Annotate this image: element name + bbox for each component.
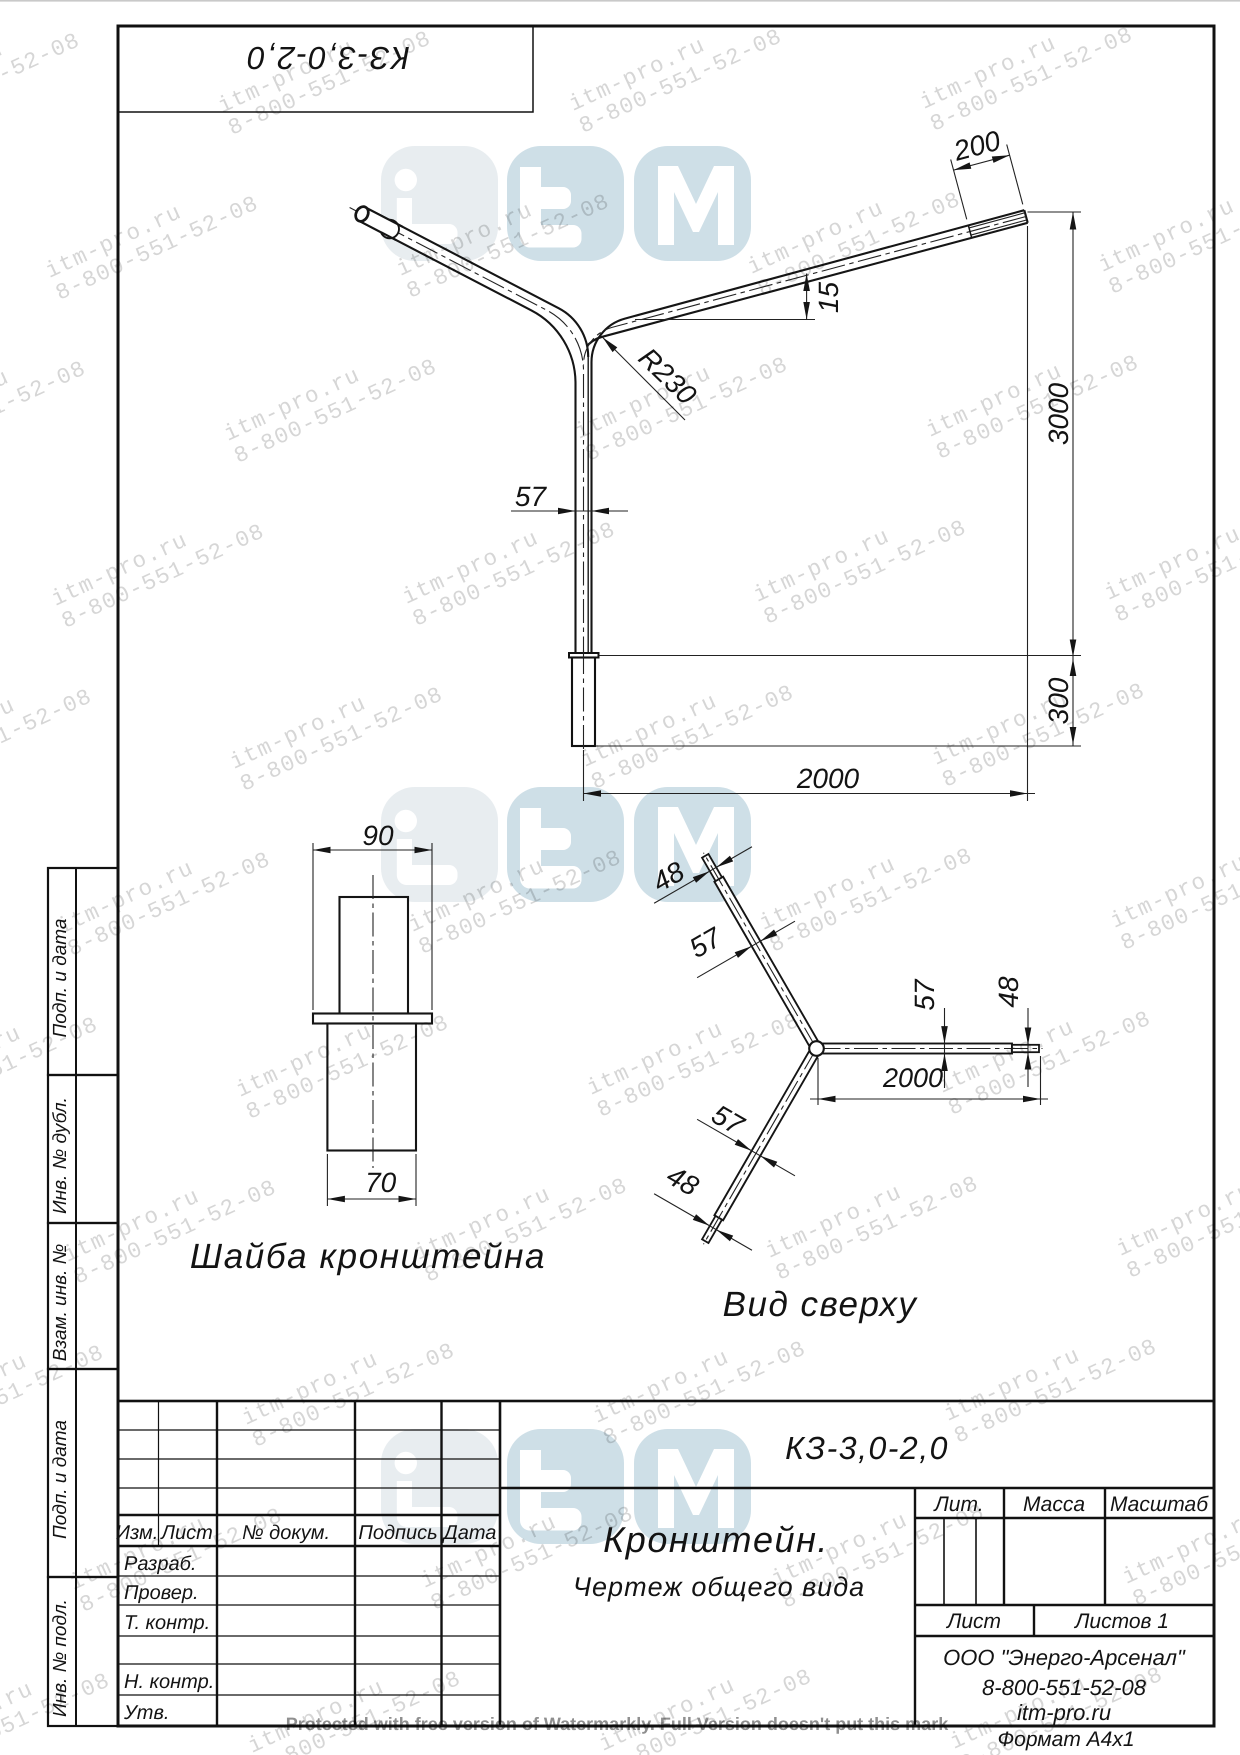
svg-text:Protected with free version of: Protected with free version of Watermark…: [286, 1714, 949, 1734]
svg-text:Н. контр.: Н. контр.: [124, 1671, 214, 1693]
svg-text:Масса: Масса: [1023, 1493, 1085, 1516]
svg-text:Подп. и дата: Подп. и дата: [50, 1420, 71, 1539]
svg-text:48: 48: [993, 976, 1024, 1008]
svg-text:Лист: Лист: [945, 1610, 1001, 1633]
svg-text:90: 90: [362, 820, 394, 851]
svg-text:Т. контр.: Т. контр.: [124, 1612, 210, 1634]
svg-text:Масштаб: Масштаб: [1110, 1493, 1209, 1516]
svg-text:Подпись: Подпись: [358, 1522, 437, 1544]
svg-text:Листов 1: Листов 1: [1073, 1610, 1169, 1633]
svg-text:Кронштейн.: Кронштейн.: [603, 1519, 829, 1560]
svg-text:Инв. № дубл.: Инв. № дубл.: [50, 1097, 71, 1214]
svg-text:57: 57: [909, 978, 940, 1011]
svg-text:2000: 2000: [796, 763, 860, 794]
svg-text:Утв.: Утв.: [123, 1702, 169, 1724]
svg-text:КЗ-3,0-2,0: КЗ-3,0-2,0: [785, 1430, 949, 1466]
svg-text:15: 15: [813, 282, 844, 314]
svg-text:70: 70: [365, 1167, 397, 1198]
svg-text:2000: 2000: [882, 1063, 943, 1093]
svg-text:57: 57: [515, 481, 548, 512]
svg-text:Вид сверху: Вид сверху: [723, 1285, 919, 1324]
